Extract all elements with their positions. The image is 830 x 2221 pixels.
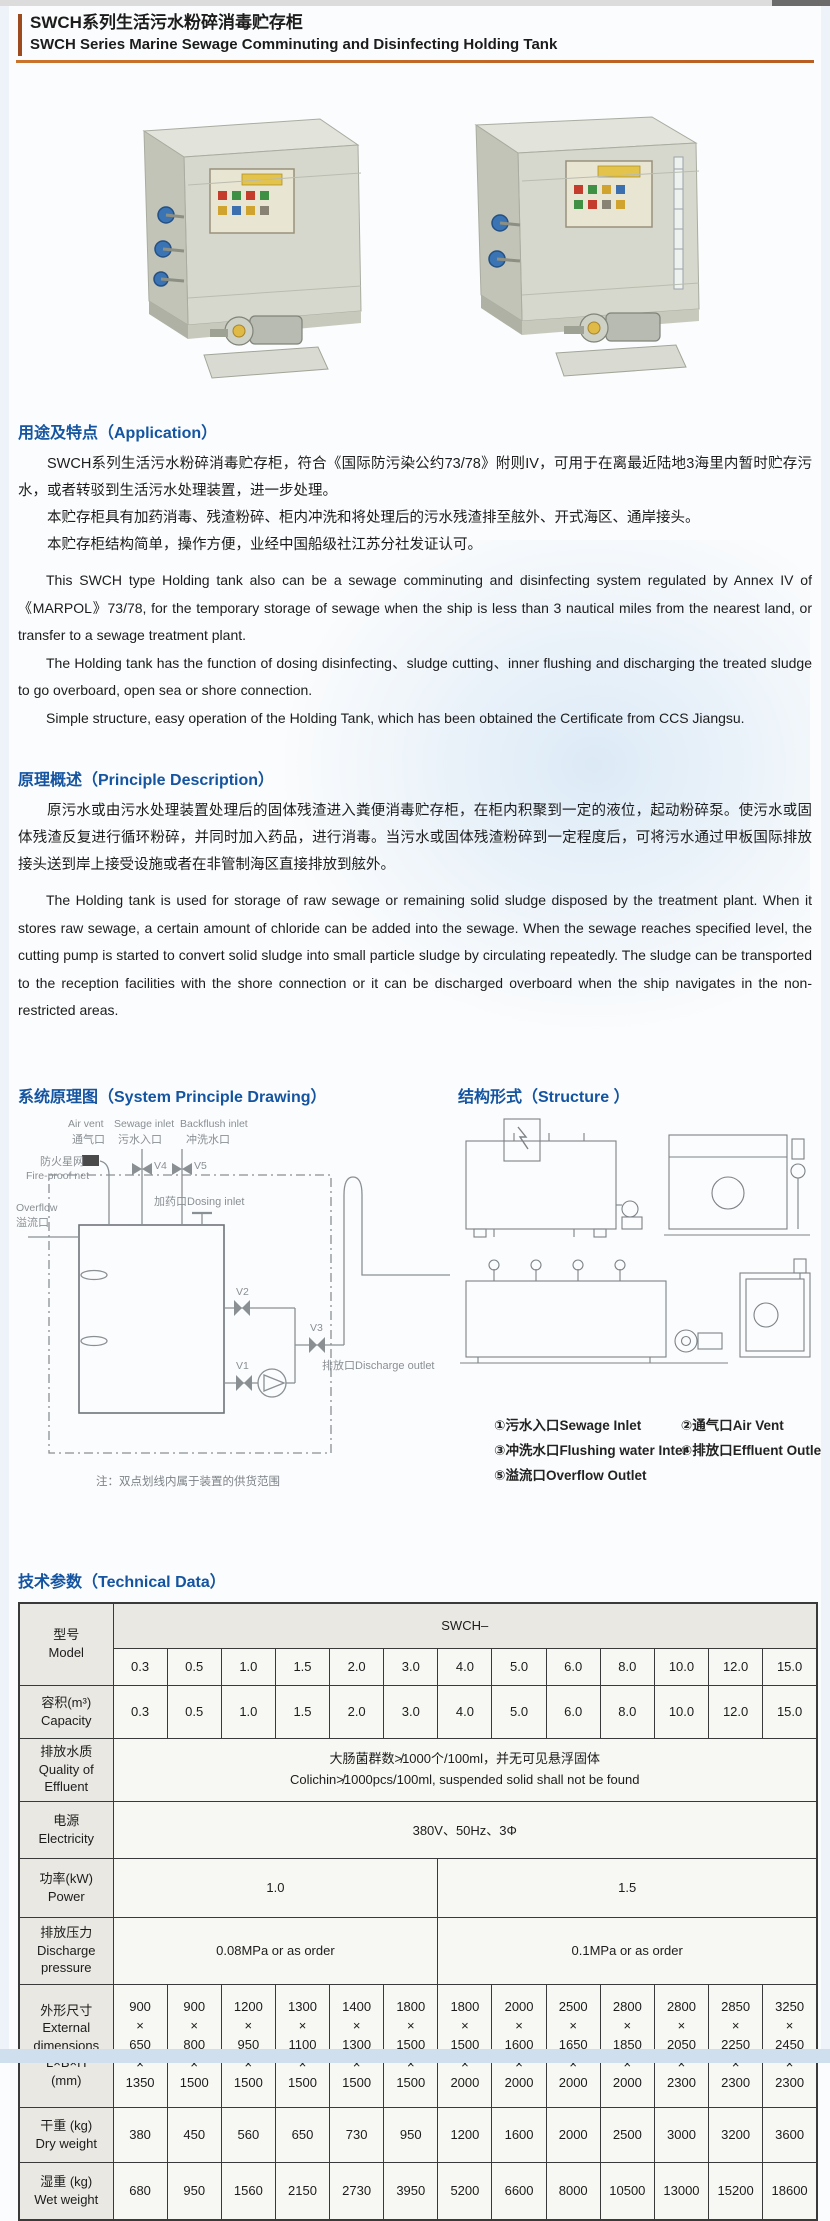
principle-paragraph-zh: 原污水或由污水处理装置处理后的固体残渣进入粪便消毒贮存柜，在柜内积聚到一定的液位… <box>18 798 812 879</box>
capacity-cell: 10.0 <box>654 1685 708 1738</box>
dry-weight-cell: 730 <box>330 2107 384 2162</box>
dimensions-cell: 2850×2250×2300 <box>709 1984 763 2107</box>
dry-weight-cell: 1600 <box>492 2107 546 2162</box>
row-label-pressure: 排放压力 Discharge pressure <box>19 1917 113 1984</box>
table-row-power: 功率(kW) Power 1.0 1.5 <box>19 1858 817 1917</box>
row-label-effluent-en1: Quality of <box>20 1761 113 1779</box>
models-cell: 8.0 <box>600 1648 654 1685</box>
dimensions-cell: 1200×950×1500 <box>221 1984 275 2107</box>
dimensions-cell: 3250×2450×2300 <box>763 1984 817 2107</box>
overflow-label-zh: 溢流口 <box>16 1215 49 1229</box>
application-paragraph-zh-1: SWCH系列生活污水粉碎消毒贮存柜，符合《国际防污染公约73/78》附则IV，可… <box>18 451 812 505</box>
dry-weight-cell: 450 <box>167 2107 221 2162</box>
wet-weight-cell: 2150 <box>275 2162 329 2220</box>
page-top-border-dark <box>772 0 830 6</box>
capacity-cell: 4.0 <box>438 1685 492 1738</box>
row-label-effluent-en2: Effluent <box>20 1778 113 1796</box>
capacity-cell: 5.0 <box>492 1685 546 1738</box>
pressure-value-high: 0.1MPa or as order <box>438 1917 817 1984</box>
valve-v2-label: V2 <box>236 1286 249 1298</box>
technical-heading: 技术参数（Technical Data） <box>18 1568 812 1592</box>
power-value-high: 1.5 <box>438 1858 817 1917</box>
table-row-wet-weight: 湿重 (kg) Wet weight 680950156021502730395… <box>19 2162 817 2220</box>
wet-weight-cell: 15200 <box>709 2162 763 2220</box>
legend-num-5: ⑤ <box>494 1468 505 1483</box>
legend-en-4: Effluent Outlet <box>733 1443 826 1458</box>
legend-item-1: ①污水入口Sewage Inlet <box>494 1414 681 1434</box>
row-label-electricity-en: Electricity <box>20 1830 113 1848</box>
row-label-capacity: 容积(m³) Capacity <box>19 1685 113 1738</box>
dry-weight-cell: 2500 <box>600 2107 654 2162</box>
dosing-inlet-label: 加药口Dosing inlet <box>154 1195 244 1208</box>
row-label-model-zh: 型号 <box>20 1626 113 1644</box>
application-paragraph-en-1: This SWCH type Holding tank also can be … <box>18 567 812 650</box>
structure-drawings <box>454 1113 814 1403</box>
product-photo-left <box>83 73 401 399</box>
discharge-outlet-label: 排放口Discharge outlet <box>322 1358 435 1372</box>
legend-zh-1: 污水入口 <box>505 1418 559 1433</box>
valve-v5-label: V5 <box>194 1160 207 1172</box>
dry-weight-cell: 560 <box>221 2107 275 2162</box>
wet-weight-cell: 8000 <box>546 2162 600 2220</box>
system-principle-diagram: Air vent 通气口 Sewage inlet 污水入口 Backflush… <box>14 1113 450 1517</box>
row-label-capacity-en: Capacity <box>20 1712 113 1730</box>
technical-data-table: 型号 Model SWCH– 0.30.51.01.52.03.04.05.06… <box>18 1602 818 2221</box>
wet-weight-cell: 10500 <box>600 2162 654 2220</box>
row-label-capacity-zh: 容积(m³) <box>20 1694 113 1712</box>
legend-zh-3: 冲洗水口 <box>505 1443 559 1458</box>
product-photos <box>0 73 830 403</box>
page-bottom-border <box>0 2049 830 2063</box>
capacity-cell: 1.5 <box>275 1685 329 1738</box>
legend-num-1: ① <box>494 1418 505 1433</box>
application-section: 用途及特点（Application） SWCH系列生活污水粉碎消毒贮存柜，符合《… <box>0 419 830 732</box>
valve-v3-label: V3 <box>310 1322 323 1334</box>
sewage-inlet-label-zh: 污水入口 <box>118 1133 162 1146</box>
row-label-wet-zh: 湿重 (kg) <box>20 2173 113 2191</box>
page-title-chinese: SWCH系列生活污水粉碎消毒贮存柜 <box>30 12 814 34</box>
models-cell: 12.0 <box>709 1648 763 1685</box>
air-vent-label-en: Air vent <box>68 1118 104 1130</box>
capacity-cell: 0.3 <box>113 1685 167 1738</box>
dimensions-cell: 1300×1100×1500 <box>275 1984 329 2107</box>
page-top-border <box>0 0 830 6</box>
dry-weight-cell: 380 <box>113 2107 167 2162</box>
wet-weight-cell: 950 <box>167 2162 221 2220</box>
valve-v1-label: V1 <box>236 1360 249 1372</box>
title-underline <box>16 60 814 63</box>
system-principle-heading: 系统原理图（System Principle Drawing） <box>18 1083 454 1107</box>
application-paragraph-zh-3: 本贮存柜结构简单，操作方便，业经中国船级社江苏分社发证认可。 <box>18 532 812 559</box>
legend-item-5: ⑤溢流口Overflow Outlet <box>494 1464 681 1484</box>
fireproof-net-label-zh: 防火星网 <box>40 1154 84 1168</box>
capacity-cell: 15.0 <box>763 1685 817 1738</box>
row-label-wet-en: Wet weight <box>20 2191 113 2209</box>
capacity-cell: 1.0 <box>221 1685 275 1738</box>
dry-weight-cell: 950 <box>384 2107 438 2162</box>
legend-zh-2: 通气口 <box>692 1418 733 1433</box>
row-label-wet-weight: 湿重 (kg) Wet weight <box>19 2162 113 2220</box>
legend-num-4: ④ <box>681 1443 692 1458</box>
legend-item-2: ②通气口Air Vent <box>681 1414 816 1434</box>
capacity-cell: 2.0 <box>330 1685 384 1738</box>
series-header-cell: SWCH– <box>113 1603 817 1649</box>
dry-weight-cell: 3000 <box>654 2107 708 2162</box>
dry-weight-cell: 1200 <box>438 2107 492 2162</box>
dimensions-cell: 1400×1300×1500 <box>330 1984 384 2107</box>
capacity-cell: 0.5 <box>167 1685 221 1738</box>
pressure-value-low: 0.08MPa or as order <box>113 1917 438 1984</box>
legend-item-4: ④排放口Effluent Outlet <box>681 1439 816 1459</box>
capacity-cell: 8.0 <box>600 1685 654 1738</box>
models-cell: 4.0 <box>438 1648 492 1685</box>
application-paragraph-zh-2: 本贮存柜具有加药消毒、残渣粉碎、柜内冲洗和将处理后的污水残渣排至舷外、开式海区、… <box>18 505 812 532</box>
principle-paragraph-en: The Holding tank is used for storage of … <box>18 887 812 1025</box>
valve-v4-label: V4 <box>154 1160 167 1172</box>
dry-weight-cell: 3600 <box>763 2107 817 2162</box>
wet-weight-cell: 18600 <box>763 2162 817 2220</box>
table-row-effluent: 排放水质 Quality of Effluent 大肠菌群数≯1000个/100… <box>19 1738 817 1801</box>
models-cell: 5.0 <box>492 1648 546 1685</box>
technical-section: 技术参数（Technical Data） 型号 Model SWCH– 0.30… <box>0 1568 830 2221</box>
models-cell: 0.5 <box>167 1648 221 1685</box>
row-label-electricity-zh: 电源 <box>20 1812 113 1830</box>
wet-weight-cell: 2730 <box>330 2162 384 2220</box>
title-accent-bar <box>18 14 22 56</box>
sewage-inlet-label-en: Sewage inlet <box>114 1118 174 1130</box>
table-row-models: 0.30.51.01.52.03.04.05.06.08.010.012.015… <box>19 1648 817 1685</box>
models-cell: 1.5 <box>275 1648 329 1685</box>
structure-heading: 结构形式（Structure ） <box>458 1083 816 1107</box>
row-label-power-zh: 功率(kW) <box>20 1870 113 1888</box>
overflow-label-en: Overflow <box>16 1202 58 1214</box>
dimensions-cell: 2500×1650×2000 <box>546 1984 600 2107</box>
dimensions-cell: 900×800×1500 <box>167 1984 221 2107</box>
capacity-cell: 3.0 <box>384 1685 438 1738</box>
structure-column: 结构形式（Structure ） <box>454 1083 816 1522</box>
row-label-effluent-zh: 排放水质 <box>20 1743 113 1761</box>
wet-weight-cell: 680 <box>113 2162 167 2220</box>
legend-en-3: Flushing water Inter <box>559 1443 687 1458</box>
diagram-note: 注：双点划线内属于装置的供货范围 <box>96 1474 280 1488</box>
legend-zh-5: 溢流口 <box>505 1468 546 1483</box>
row-label-power-en: Power <box>20 1888 113 1906</box>
models-cell: 3.0 <box>384 1648 438 1685</box>
effluent-value-zh: 大肠菌群数≯1000个/100ml，并无可见悬浮固体 <box>114 1749 817 1769</box>
dimensions-cell: 2800×2050×2300 <box>654 1984 708 2107</box>
table-row-dimensions: 外形尺寸 External dimensions L×B×H (mm) 900×… <box>19 1984 817 2107</box>
row-label-pressure-en2: pressure <box>20 1959 113 1977</box>
dimensions-cell: 2000×1600×2000 <box>492 1984 546 2107</box>
dry-weight-cell: 2000 <box>546 2107 600 2162</box>
product-photo-right <box>429 73 747 399</box>
power-value-low: 1.0 <box>113 1858 438 1917</box>
legend-en-2: Air Vent <box>733 1418 784 1433</box>
wet-weight-cell: 5200 <box>438 2162 492 2220</box>
models-cell: 2.0 <box>330 1648 384 1685</box>
application-heading: 用途及特点（Application） <box>18 419 812 443</box>
table-row-series: 型号 Model SWCH– <box>19 1603 817 1649</box>
backflush-inlet-label-zh: 冲洗水口 <box>186 1132 230 1146</box>
page-right-border <box>821 0 830 2063</box>
principle-heading: 原理概述（Principle Description） <box>18 766 812 790</box>
electricity-value-cell: 380V、50Hz、3Φ <box>113 1801 817 1858</box>
models-cell: 6.0 <box>546 1648 600 1685</box>
wet-weight-cell: 1560 <box>221 2162 275 2220</box>
legend-num-3: ③ <box>494 1443 505 1458</box>
table-row-pressure: 排放压力 Discharge pressure 0.08MPa or as or… <box>19 1917 817 1984</box>
page-title-english: SWCH Series Marine Sewage Comminuting an… <box>30 34 814 55</box>
effluent-value-en: Colichin≯1000pcs/100ml, suspended solid … <box>114 1770 817 1790</box>
row-label-dimensions-en1: External <box>20 2019 113 2037</box>
application-paragraph-en-2: The Holding tank has the function of dos… <box>18 650 812 705</box>
page-left-border <box>0 0 9 2063</box>
dimensions-cell: 1800×1500×1500 <box>384 1984 438 2107</box>
models-cell: 15.0 <box>763 1648 817 1685</box>
row-label-model: 型号 Model <box>19 1603 113 1686</box>
fireproof-net-label-en: Fire-proof net <box>26 1170 89 1182</box>
capacity-cell: 12.0 <box>709 1685 763 1738</box>
backflush-inlet-label-en: Backflush inlet <box>180 1118 248 1130</box>
table-row-dry-weight: 干重 (kg) Dry weight 380450560650730950120… <box>19 2107 817 2162</box>
legend-num-2: ② <box>681 1418 692 1433</box>
row-label-electricity: 电源 Electricity <box>19 1801 113 1858</box>
application-paragraph-en-3: Simple structure, easy operation of the … <box>18 705 812 733</box>
models-cell: 0.3 <box>113 1648 167 1685</box>
row-label-dimensions-zh: 外形尺寸 <box>20 2002 113 2020</box>
dimensions-cell: 2800×1850×2000 <box>600 1984 654 2107</box>
legend-zh-4: 排放口 <box>692 1443 733 1458</box>
structure-legend: ①污水入口Sewage Inlet ②通气口Air Vent ③冲洗水口Flus… <box>494 1414 816 1484</box>
diagrams-section: 系统原理图（System Principle Drawing） <box>0 1083 830 1522</box>
row-label-dimensions-unit: (mm) <box>20 2072 113 2090</box>
wet-weight-cell: 3950 <box>384 2162 438 2220</box>
dimensions-cell: 900×650×1350 <box>113 1984 167 2107</box>
legend-en-5: Overflow Outlet <box>546 1468 647 1483</box>
row-label-power: 功率(kW) Power <box>19 1858 113 1917</box>
page-header: SWCH系列生活污水粉碎消毒贮存柜 SWCH Series Marine Sew… <box>0 0 830 63</box>
dry-weight-cell: 650 <box>275 2107 329 2162</box>
row-label-effluent: 排放水质 Quality of Effluent <box>19 1738 113 1801</box>
row-label-dry-en: Dry weight <box>20 2135 113 2153</box>
row-label-pressure-zh: 排放压力 <box>20 1924 113 1942</box>
wet-weight-cell: 13000 <box>654 2162 708 2220</box>
row-label-dimensions: 外形尺寸 External dimensions L×B×H (mm) <box>19 1984 113 2107</box>
models-cell: 10.0 <box>654 1648 708 1685</box>
capacity-cell: 6.0 <box>546 1685 600 1738</box>
models-cell: 1.0 <box>221 1648 275 1685</box>
effluent-value-cell: 大肠菌群数≯1000个/100ml，并无可见悬浮固体 Colichin≯1000… <box>113 1738 817 1801</box>
row-label-pressure-en1: Discharge <box>20 1942 113 1960</box>
legend-en-1: Sewage Inlet <box>559 1418 641 1433</box>
dimensions-cell: 1800×1500×2000 <box>438 1984 492 2107</box>
air-vent-label-zh: 通气口 <box>72 1132 105 1146</box>
system-principle-column: 系统原理图（System Principle Drawing） <box>14 1083 454 1522</box>
legend-item-3: ③冲洗水口Flushing water Inter <box>494 1439 681 1459</box>
row-label-model-en: Model <box>20 1644 113 1662</box>
row-label-dry-weight: 干重 (kg) Dry weight <box>19 2107 113 2162</box>
row-label-dry-zh: 干重 (kg) <box>20 2117 113 2135</box>
table-row-electricity: 电源 Electricity 380V、50Hz、3Φ <box>19 1801 817 1858</box>
principle-section: 原理概述（Principle Description） 原污水或由污水处理装置处… <box>0 766 830 1025</box>
wet-weight-cell: 6600 <box>492 2162 546 2220</box>
table-row-capacity: 容积(m³) Capacity 0.30.51.01.52.03.04.05.0… <box>19 1685 817 1738</box>
dry-weight-cell: 3200 <box>709 2107 763 2162</box>
